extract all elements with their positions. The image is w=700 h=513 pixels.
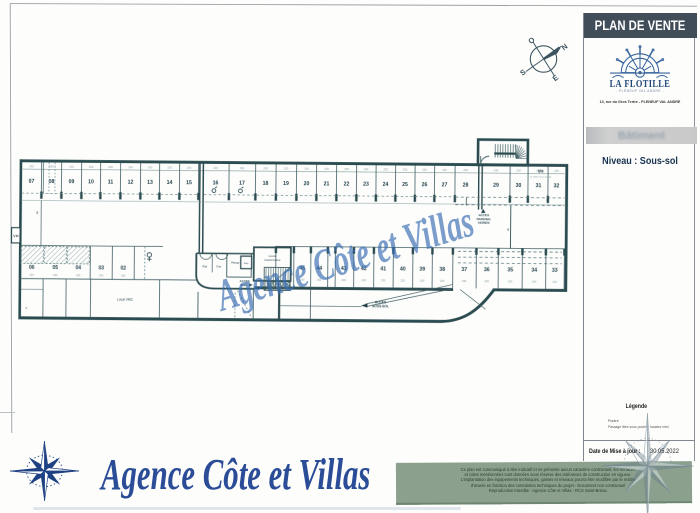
svg-text:Agence Côte et Villas: Agence Côte et Villas (99, 451, 370, 500)
